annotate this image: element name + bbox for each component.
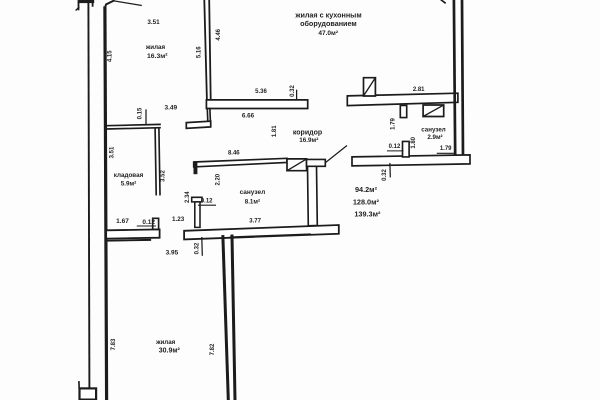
svg-text:оборудованием: оборудованием <box>300 19 357 28</box>
svg-text:1.81: 1.81 <box>272 125 278 137</box>
svg-text:5.36: 5.36 <box>255 89 267 95</box>
svg-text:0.12: 0.12 <box>201 199 213 205</box>
svg-text:2.20: 2.20 <box>215 173 221 185</box>
svg-text:2.9м²: 2.9м² <box>427 134 442 141</box>
svg-text:2.81: 2.81 <box>413 87 425 93</box>
svg-text:3.51: 3.51 <box>147 19 160 26</box>
svg-text:1.23: 1.23 <box>172 216 185 223</box>
svg-text:1.79: 1.79 <box>391 118 397 130</box>
svg-text:1.80: 1.80 <box>411 136 417 148</box>
svg-text:санузел: санузел <box>421 126 445 133</box>
svg-text:16.9м²: 16.9м² <box>299 137 318 144</box>
svg-text:жилая: жилая <box>155 339 176 346</box>
svg-text:3.77: 3.77 <box>249 219 261 225</box>
svg-text:4.46: 4.46 <box>216 28 222 40</box>
svg-text:1.79: 1.79 <box>440 146 452 152</box>
svg-text:0.32: 0.32 <box>382 169 388 181</box>
svg-text:3.49: 3.49 <box>164 104 177 111</box>
svg-text:0.32: 0.32 <box>290 85 296 97</box>
svg-text:кладовая: кладовая <box>114 172 144 179</box>
svg-text:16.3м²: 16.3м² <box>147 53 168 60</box>
svg-text:6.66: 6.66 <box>242 113 255 120</box>
svg-text:жилая: жилая <box>145 44 166 51</box>
svg-text:139.3м²: 139.3м² <box>354 209 381 218</box>
svg-text:санузел: санузел <box>240 189 266 196</box>
svg-text:5.16: 5.16 <box>196 46 202 58</box>
svg-text:0.12: 0.12 <box>142 219 155 226</box>
svg-text:7.82: 7.82 <box>210 343 216 355</box>
svg-text:128.0м²: 128.0м² <box>353 197 380 206</box>
svg-text:3.95: 3.95 <box>166 250 179 257</box>
svg-text:0.12: 0.12 <box>389 144 401 150</box>
svg-text:3.52: 3.52 <box>161 170 167 182</box>
svg-text:94.2м²: 94.2м² <box>355 185 378 194</box>
svg-text:коридор: коридор <box>293 130 322 137</box>
svg-text:8.1м²: 8.1м² <box>245 199 260 206</box>
svg-text:0.15: 0.15 <box>138 107 144 119</box>
svg-text:5.9м²: 5.9м² <box>121 181 137 188</box>
svg-text:30.9м²: 30.9м² <box>159 348 181 355</box>
svg-text:8.46: 8.46 <box>228 151 240 157</box>
svg-text:1.67: 1.67 <box>116 218 129 225</box>
svg-text:4.15: 4.15 <box>108 50 114 62</box>
svg-text:2.34: 2.34 <box>185 191 191 203</box>
svg-text:7.83: 7.83 <box>111 338 117 350</box>
svg-text:0.32: 0.32 <box>195 242 201 254</box>
svg-text:47.0м²: 47.0м² <box>318 30 338 37</box>
svg-text:3.51: 3.51 <box>110 146 116 158</box>
